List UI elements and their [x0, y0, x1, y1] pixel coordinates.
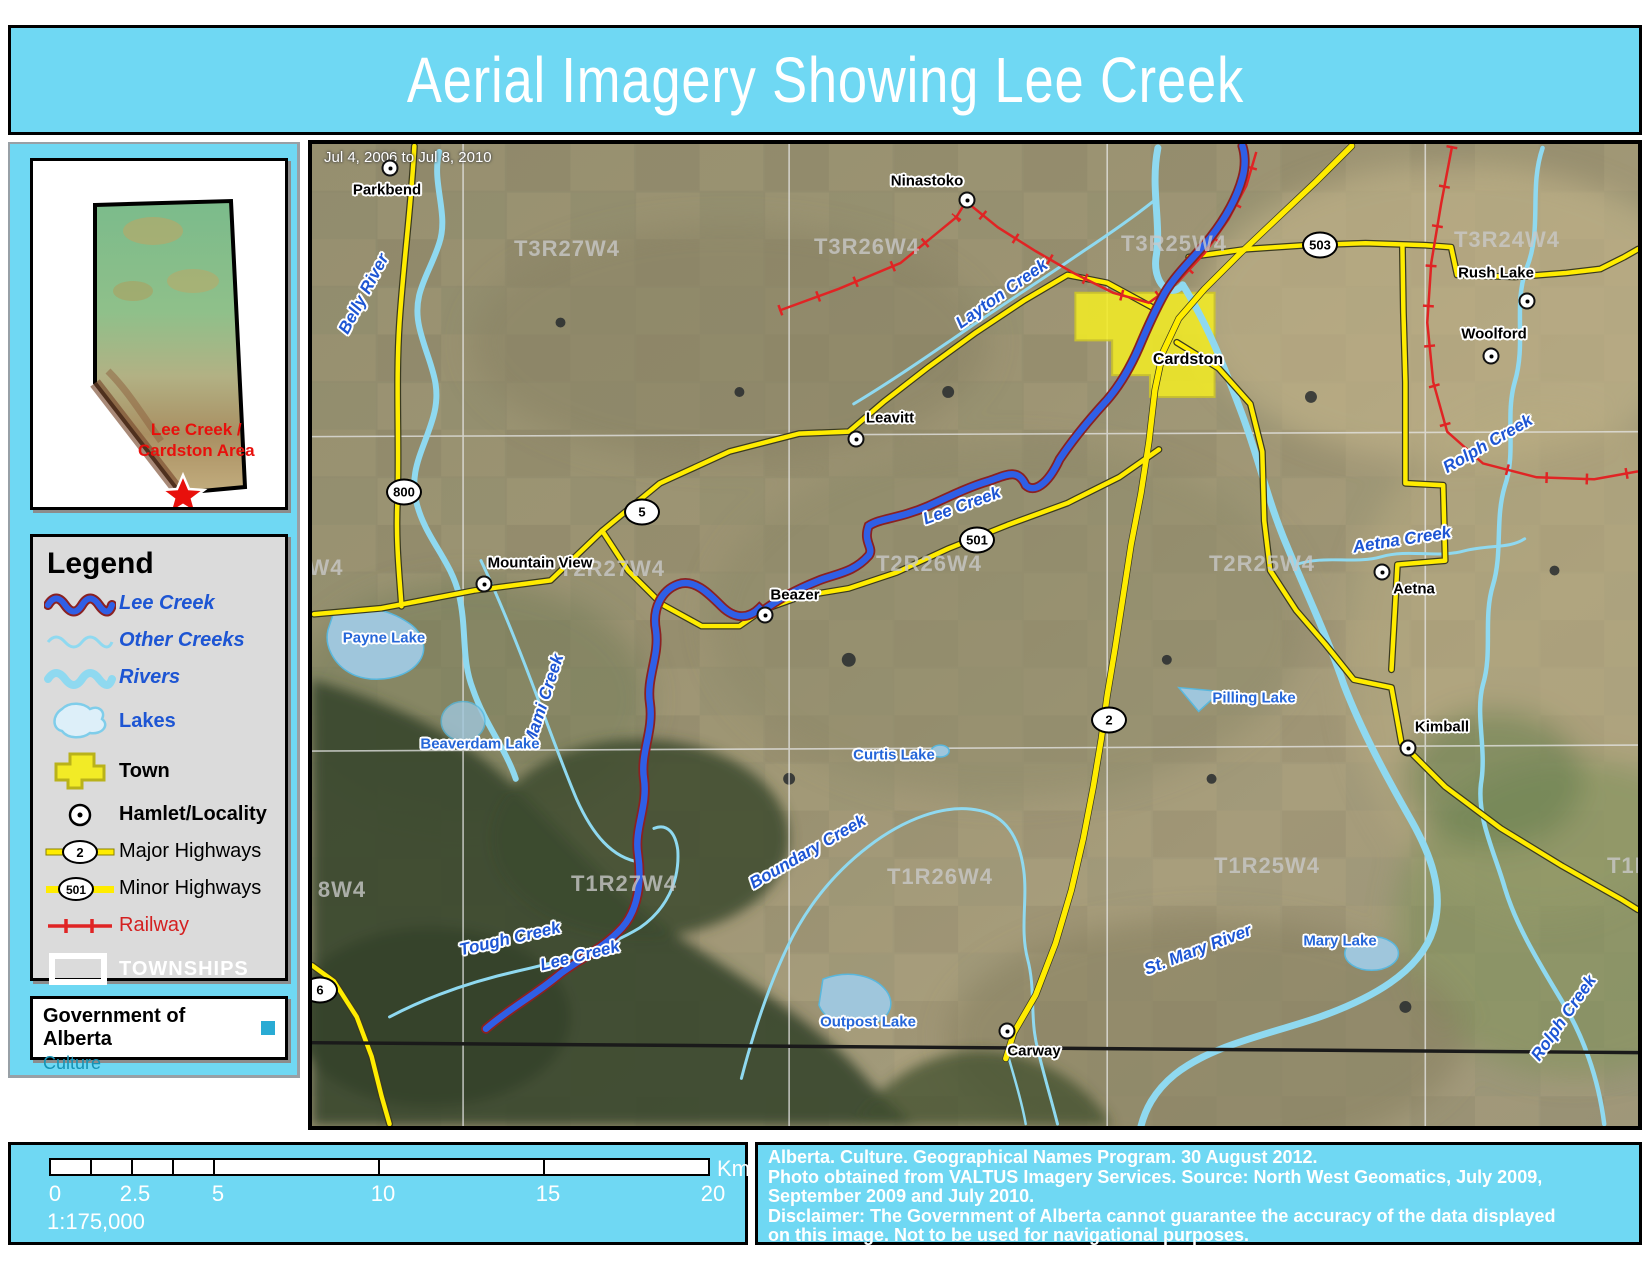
scale-tick: 5 [212, 1181, 224, 1207]
imagery-date-range: Jul 4, 2006 to Jul 8, 2010 [324, 149, 492, 166]
aerial-map: Jul 4, 2006 to Jul 8, 2010 Cardston T3R2… [312, 144, 1638, 1126]
lake-label: Outpost Lake [820, 1014, 916, 1031]
lake-label: Payne Lake [343, 630, 426, 647]
township-label: T1R25W4 [1214, 853, 1320, 879]
scale-tick: 20 [701, 1181, 725, 1207]
lake-label: Beaverdam Lake [420, 736, 539, 753]
water-label: Mami Creek [520, 652, 569, 749]
township-label: T1R24W4 [1607, 853, 1638, 879]
scale-tick: 0 [49, 1181, 61, 1207]
water-label: Rolph Creek [1440, 410, 1537, 477]
hamlet-marker [1374, 564, 1391, 581]
hamlet-marker [1400, 740, 1417, 757]
scale-tick: 2.5 [120, 1181, 151, 1207]
legend-item-railway: Railway [33, 907, 285, 944]
svg-text:501: 501 [66, 883, 86, 897]
highway-shield: 2 [1091, 707, 1127, 734]
railway-line-icon [41, 915, 119, 937]
highway-shield: 503 [1302, 232, 1338, 259]
attribution-line: Photo obtained from VALTUS Imagery Servi… [768, 1168, 1629, 1188]
attribution: Alberta. Culture. Geographical Names Pro… [755, 1142, 1642, 1245]
legend-item-other-creeks: Other Creeks [33, 622, 285, 659]
map-frame: Jul 4, 2006 to Jul 8, 2010 Cardston T3R2… [308, 140, 1642, 1130]
lake-label: Mary Lake [1303, 933, 1376, 950]
scale-bar: Km 0 2.5 5 10 15 20 1:175,000 [8, 1142, 748, 1245]
government-name: Government of Alberta [43, 1005, 253, 1051]
major-highway-shield-icon: 2 [41, 838, 119, 866]
legend-item-rivers: Rivers [33, 659, 285, 696]
legend-item-major-highways: 2 Major Highways [33, 833, 285, 870]
hamlet-marker [382, 160, 399, 177]
township-label: T2R25W4 [1209, 551, 1315, 577]
township-label: T2R26W4 [876, 551, 982, 577]
water-label: Layton Creek [952, 255, 1052, 333]
attribution-line: Disclaimer: The Government of Alberta ca… [768, 1207, 1629, 1227]
water-label: St. Mary River [1141, 920, 1254, 979]
other-creeks-line-icon [41, 630, 119, 652]
legend: Legend Lee Creek Other Creeks River [30, 534, 288, 981]
department-name: Culture [43, 1053, 275, 1074]
legend-item-hamlet: Hamlet/Locality [33, 796, 285, 833]
scale-tick: 10 [371, 1181, 395, 1207]
township-outline-icon [41, 950, 119, 988]
scale-tick: 15 [536, 1181, 560, 1207]
government-branding: Government of Alberta Culture [30, 996, 288, 1060]
government-logo-icon [261, 1021, 275, 1035]
legend-item-lakes: Lakes [33, 696, 285, 746]
hamlet-label: Kimball [1415, 719, 1469, 736]
township-label: T1R26W4 [887, 864, 993, 890]
hamlet-label: Beazer [770, 587, 819, 604]
lee-creek-line-icon [41, 591, 119, 617]
rivers-line-icon [41, 665, 119, 691]
water-label: Rolph Creek [1527, 971, 1601, 1065]
water-label: Lee Creek [920, 483, 1003, 530]
minor-highway-shield-icon: 501 [41, 875, 119, 903]
legend-item-townships: TOWNSHIPS [33, 944, 285, 994]
water-label: Lee Creek [538, 936, 622, 975]
hamlet-label: Mountain View [488, 555, 593, 572]
township-label: T1R27W4 [571, 871, 677, 897]
legend-heading: Legend [47, 547, 285, 581]
hamlet-marker [476, 576, 493, 593]
attribution-line: Alberta. Culture. Geographical Names Pro… [768, 1148, 1629, 1168]
water-label: Aetna Creek [1351, 522, 1452, 557]
water-label: Boundary Creek [746, 811, 870, 894]
attribution-line: on this image. Not to be used for naviga… [768, 1226, 1629, 1246]
page-title: Aerial Imagery Showing Lee Creek [406, 43, 1243, 117]
lake-shape-icon [41, 699, 119, 743]
township-label: T3R25W4 [1121, 231, 1227, 257]
hamlet-label: Ninastoko [891, 173, 964, 190]
hamlet-label: Woolford [1461, 326, 1527, 343]
hamlet-marker [959, 192, 976, 209]
scale-unit: Km [717, 1156, 750, 1182]
hamlet-label: Parkbend [353, 182, 421, 199]
alberta-inset-map: Lee Creek / Cardston Area [30, 158, 288, 510]
svg-text:2: 2 [76, 845, 83, 860]
township-label: W4 [312, 555, 344, 581]
highway-shield: 800 [386, 479, 422, 506]
township-label: T3R26W4 [814, 234, 920, 260]
scale-bar-segments [51, 1158, 710, 1176]
town-label-cardston: Cardston [1153, 351, 1223, 369]
legend-item-lee-creek: Lee Creek [33, 585, 285, 622]
highway-shield: 5 [624, 499, 660, 526]
hamlet-label: Carway [1007, 1043, 1060, 1060]
lake-label: Pilling Lake [1212, 690, 1295, 707]
inset-area-label: Lee Creek / Cardston Area [138, 419, 255, 461]
scale-ratio: 1:175,000 [47, 1209, 145, 1235]
hamlet-marker [1519, 293, 1536, 310]
water-label: Belly River [335, 251, 394, 338]
hamlet-marker [1483, 348, 1500, 365]
attribution-line: September 2009 and July 2010. [768, 1187, 1629, 1207]
highway-shield: 501 [959, 527, 995, 554]
title-bar: Aerial Imagery Showing Lee Creek [8, 25, 1642, 135]
town-shape-icon [41, 748, 119, 794]
legend-item-town: Town [33, 746, 285, 796]
hamlet-label: Rush Lake [1458, 265, 1534, 282]
township-label: T3R24W4 [1454, 227, 1560, 253]
township-label: 8W4 [318, 877, 366, 903]
hamlet-marker [999, 1023, 1016, 1040]
highway-shield: 6 [312, 977, 338, 1004]
lake-label: Curtis Lake [853, 747, 935, 764]
map-label-overlay: Jul 4, 2006 to Jul 8, 2010 Cardston T3R2… [312, 144, 1638, 1126]
legend-item-minor-highways: 501 Minor Highways [33, 870, 285, 907]
township-label: T3R27W4 [514, 236, 620, 262]
hamlet-marker [848, 431, 865, 448]
hamlet-marker [757, 607, 774, 624]
hamlet-label: Aetna [1393, 581, 1435, 598]
hamlet-label: Leavitt [866, 410, 914, 427]
left-panel: Lee Creek / Cardston Area Legend Lee Cre… [8, 142, 300, 1078]
hamlet-marker-icon [41, 802, 119, 828]
